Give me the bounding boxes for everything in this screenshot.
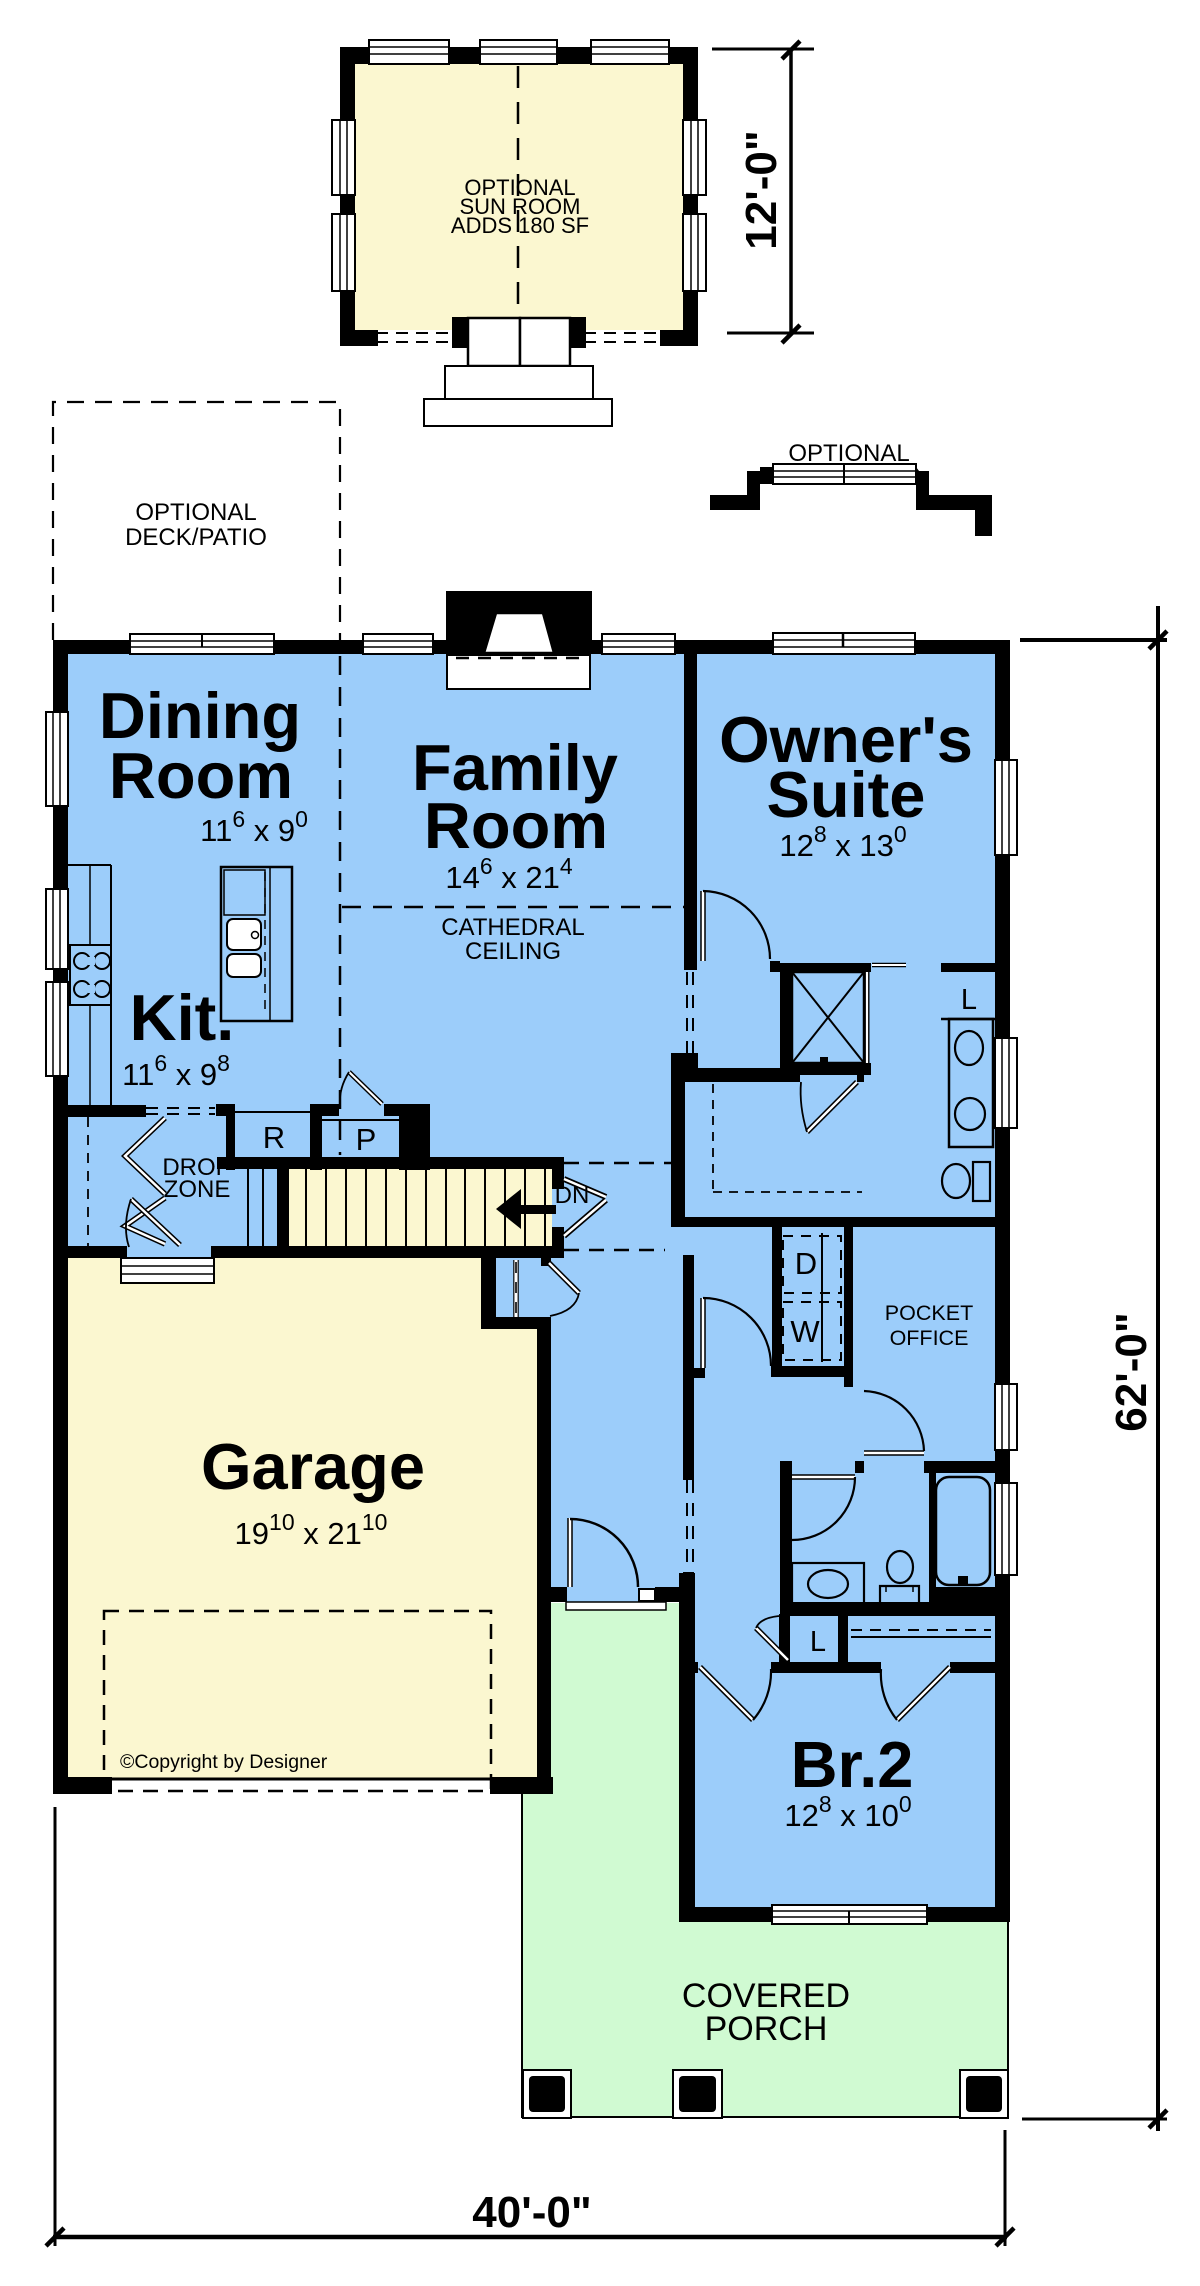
svg-text:P: P <box>356 1122 377 1157</box>
svg-text:W: W <box>790 1314 820 1349</box>
svg-text:CEILING: CEILING <box>465 938 561 965</box>
svg-text:146 x 214: 146 x 214 <box>445 853 573 895</box>
svg-text:L: L <box>961 984 977 1016</box>
svg-text:L: L <box>810 1626 826 1658</box>
svg-text:DN: DN <box>555 1182 590 1209</box>
svg-text:PORCH: PORCH <box>705 2010 828 2048</box>
svg-text:OPTIONAL: OPTIONAL <box>788 440 909 467</box>
svg-text:116 x 98: 116 x 98 <box>122 1050 230 1092</box>
svg-text:40'-0": 40'-0" <box>472 2188 591 2237</box>
svg-text:12'-0": 12'-0" <box>737 130 786 249</box>
svg-text:Kit.: Kit. <box>130 981 235 1054</box>
svg-text:128 x 100: 128 x 100 <box>784 1791 911 1833</box>
svg-text:Room: Room <box>424 789 608 862</box>
svg-text:Br.2: Br.2 <box>791 1728 914 1801</box>
svg-text:D: D <box>795 1246 817 1281</box>
svg-text:DECK/PATIO: DECK/PATIO <box>125 524 267 551</box>
svg-text:R: R <box>263 1120 285 1155</box>
svg-text:Garage: Garage <box>201 1430 425 1503</box>
svg-text:62'-0": 62'-0" <box>1107 1312 1156 1431</box>
svg-text:©Copyright by Designer: ©Copyright by Designer <box>120 1751 328 1773</box>
svg-text:CATHEDRAL: CATHEDRAL <box>441 914 585 941</box>
svg-text:128 x 130: 128 x 130 <box>779 821 906 863</box>
svg-text:ADDS 180 SF: ADDS 180 SF <box>451 213 589 238</box>
svg-text:OFFICE: OFFICE <box>890 1326 969 1350</box>
svg-text:POCKET: POCKET <box>885 1301 973 1325</box>
svg-text:116 x 90: 116 x 90 <box>200 806 308 848</box>
svg-text:Room: Room <box>109 739 293 812</box>
svg-text:OPTIONAL: OPTIONAL <box>135 499 256 526</box>
svg-text:ZONE: ZONE <box>164 1176 231 1203</box>
